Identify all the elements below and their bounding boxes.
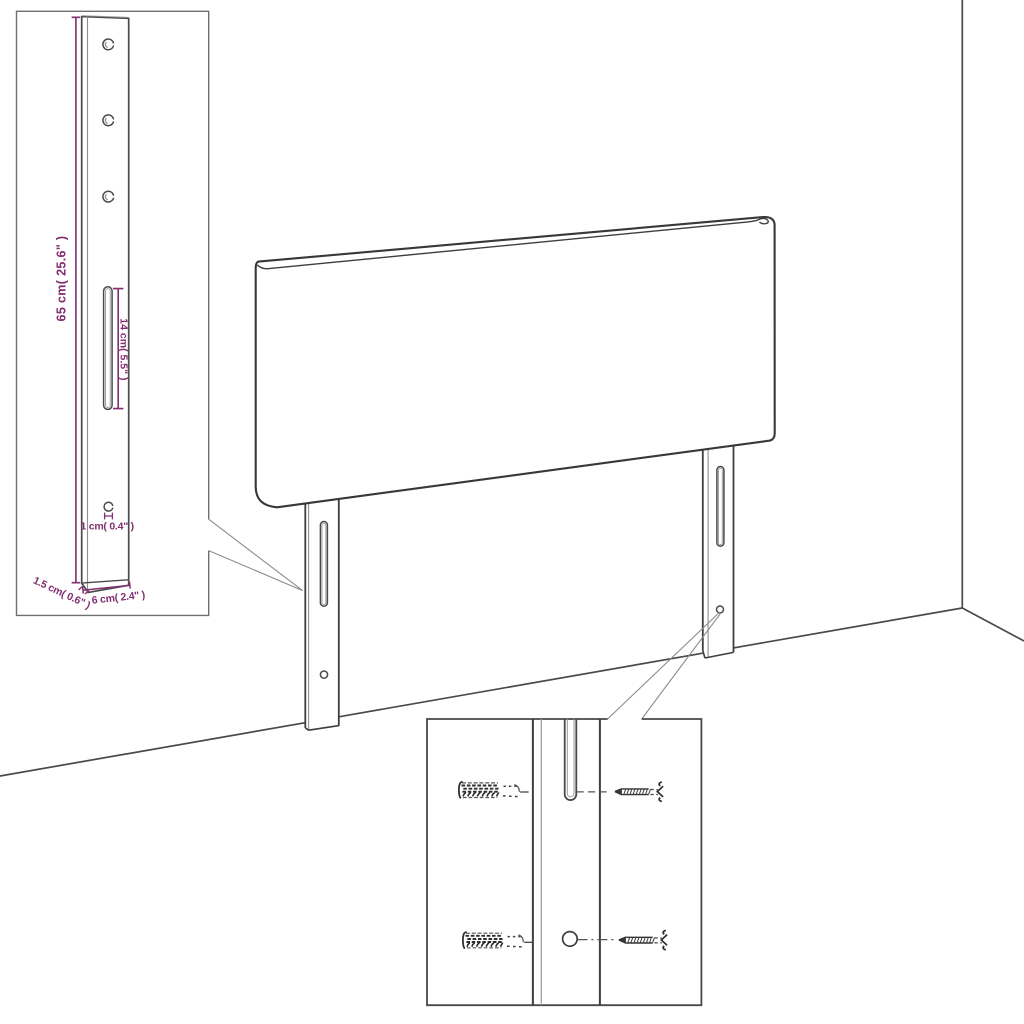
- svg-text:14 cm( 5.5" ): 14 cm( 5.5" ): [118, 318, 130, 380]
- svg-text:65 cm( 25.6" ): 65 cm( 25.6" ): [55, 236, 69, 322]
- svg-text:1 cm( 0.4" ): 1 cm( 0.4" ): [81, 520, 134, 532]
